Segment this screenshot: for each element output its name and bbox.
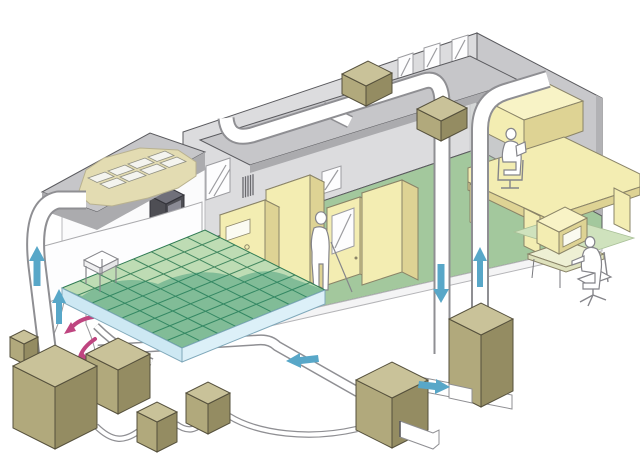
isometric-hvac-diagram: Isometric cutaway illustration of a buil…	[0, 0, 640, 467]
ahu-small-center-2	[186, 382, 230, 434]
desk-panel	[614, 188, 630, 232]
person-body	[581, 247, 601, 289]
large-cabinet	[362, 180, 418, 285]
ahu-large-left	[13, 345, 97, 449]
cabinet-side	[402, 180, 418, 280]
door-handle	[355, 257, 358, 260]
person-head	[585, 237, 595, 248]
person-head	[506, 128, 516, 139]
diagram-canvas: Isometric cutaway illustration of a buil…	[0, 0, 640, 467]
ahu-large-right	[449, 303, 513, 407]
person-head	[316, 212, 327, 224]
cabinet-front	[362, 180, 402, 285]
ahu-small-center-1	[137, 402, 177, 452]
